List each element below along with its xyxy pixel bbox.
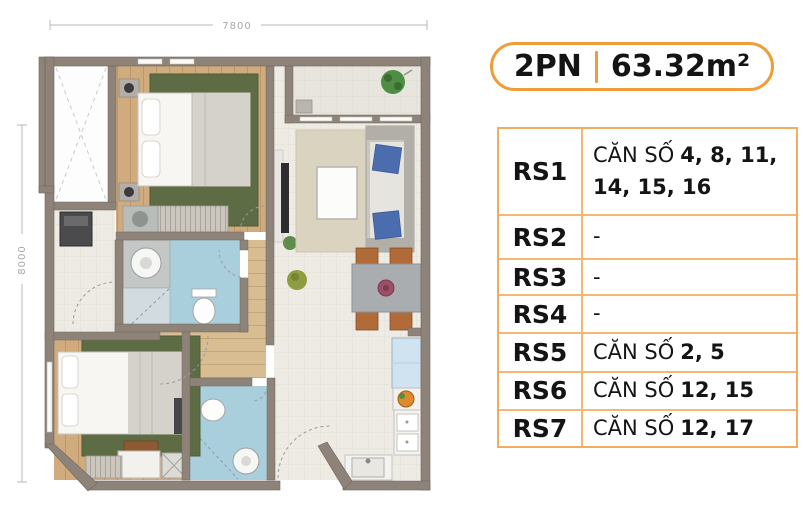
chair	[390, 312, 412, 330]
row-value: CĂN SỐ4, 8, 11, 14, 15, 16	[583, 129, 796, 214]
bench	[124, 441, 158, 451]
page: { "floor_plan": { "width_label": "7800",…	[0, 0, 803, 512]
table-row: RS5 CĂN SỐ2, 5	[499, 332, 796, 371]
row-value: CĂN SỐ12, 17	[583, 411, 796, 447]
table-row: RS7 CĂN SỐ12, 17	[499, 409, 796, 447]
wardrobe	[158, 206, 228, 232]
ac-outdoor-unit	[296, 100, 312, 113]
row-label: RS6	[499, 373, 583, 409]
table-row: RS2 -	[499, 214, 796, 258]
toilet-bowl	[193, 298, 215, 324]
dimension-left: 8000	[14, 125, 29, 482]
table-row: RS3 -	[499, 258, 796, 294]
plant	[283, 236, 297, 250]
corridor-floor	[248, 240, 266, 345]
dimension-width-label: 7800	[222, 21, 251, 32]
chair	[390, 248, 412, 266]
row-value: -	[583, 260, 796, 294]
coffee-table	[317, 167, 357, 219]
unit-bedrooms-label: 2PN	[514, 49, 582, 84]
void-floor	[54, 66, 108, 202]
floor-plan-panel: 7800 8000	[0, 0, 480, 512]
dresser	[118, 451, 160, 478]
laundry-area	[60, 212, 92, 246]
row-value: CĂN SỐ2, 5	[583, 334, 796, 371]
faucet	[366, 459, 371, 464]
wardrobe	[86, 456, 122, 478]
row-label: RS2	[499, 216, 583, 258]
row-value: -	[583, 216, 796, 258]
row-value: CĂN SỐ12, 15	[583, 373, 796, 409]
dimension-height-label: 8000	[17, 245, 28, 274]
availability-table: RS1 CĂN SỐ4, 8, 11, 14, 15, 16 RS2 - RS3…	[497, 127, 798, 448]
chair	[356, 248, 378, 266]
badge-divider	[595, 51, 598, 83]
row-label: RS4	[499, 296, 583, 332]
row-label: RS1	[499, 129, 583, 214]
table-row: RS1 CĂN SỐ4, 8, 11, 14, 15, 16	[499, 129, 796, 214]
table-row: RS6 CĂN SỐ12, 15	[499, 371, 796, 409]
floor-plan: 7800 8000	[0, 0, 480, 512]
toilet-tank	[192, 289, 216, 297]
pillow	[62, 394, 78, 426]
chair	[356, 312, 378, 330]
plant	[381, 70, 405, 94]
sofa-pillow	[373, 211, 402, 240]
tv	[281, 163, 289, 233]
unit-area-label: 63.32m²	[611, 49, 750, 84]
row-label: RS7	[499, 411, 583, 447]
unit-type-badge: 2PN 63.32m²	[490, 42, 774, 91]
pillow	[142, 141, 160, 177]
row-label: RS3	[499, 260, 583, 294]
blanket	[192, 93, 250, 186]
sofa-pillow	[372, 144, 401, 173]
entry-strip-floor	[274, 66, 285, 123]
table-row: RS4 -	[499, 294, 796, 332]
dimension-top: 7800	[50, 17, 427, 32]
bedroom-1	[119, 74, 258, 232]
toilet-bowl	[201, 399, 225, 421]
row-label: RS5	[499, 334, 583, 371]
row-value: -	[583, 296, 796, 332]
pillow	[62, 356, 78, 388]
pillow	[142, 99, 160, 135]
